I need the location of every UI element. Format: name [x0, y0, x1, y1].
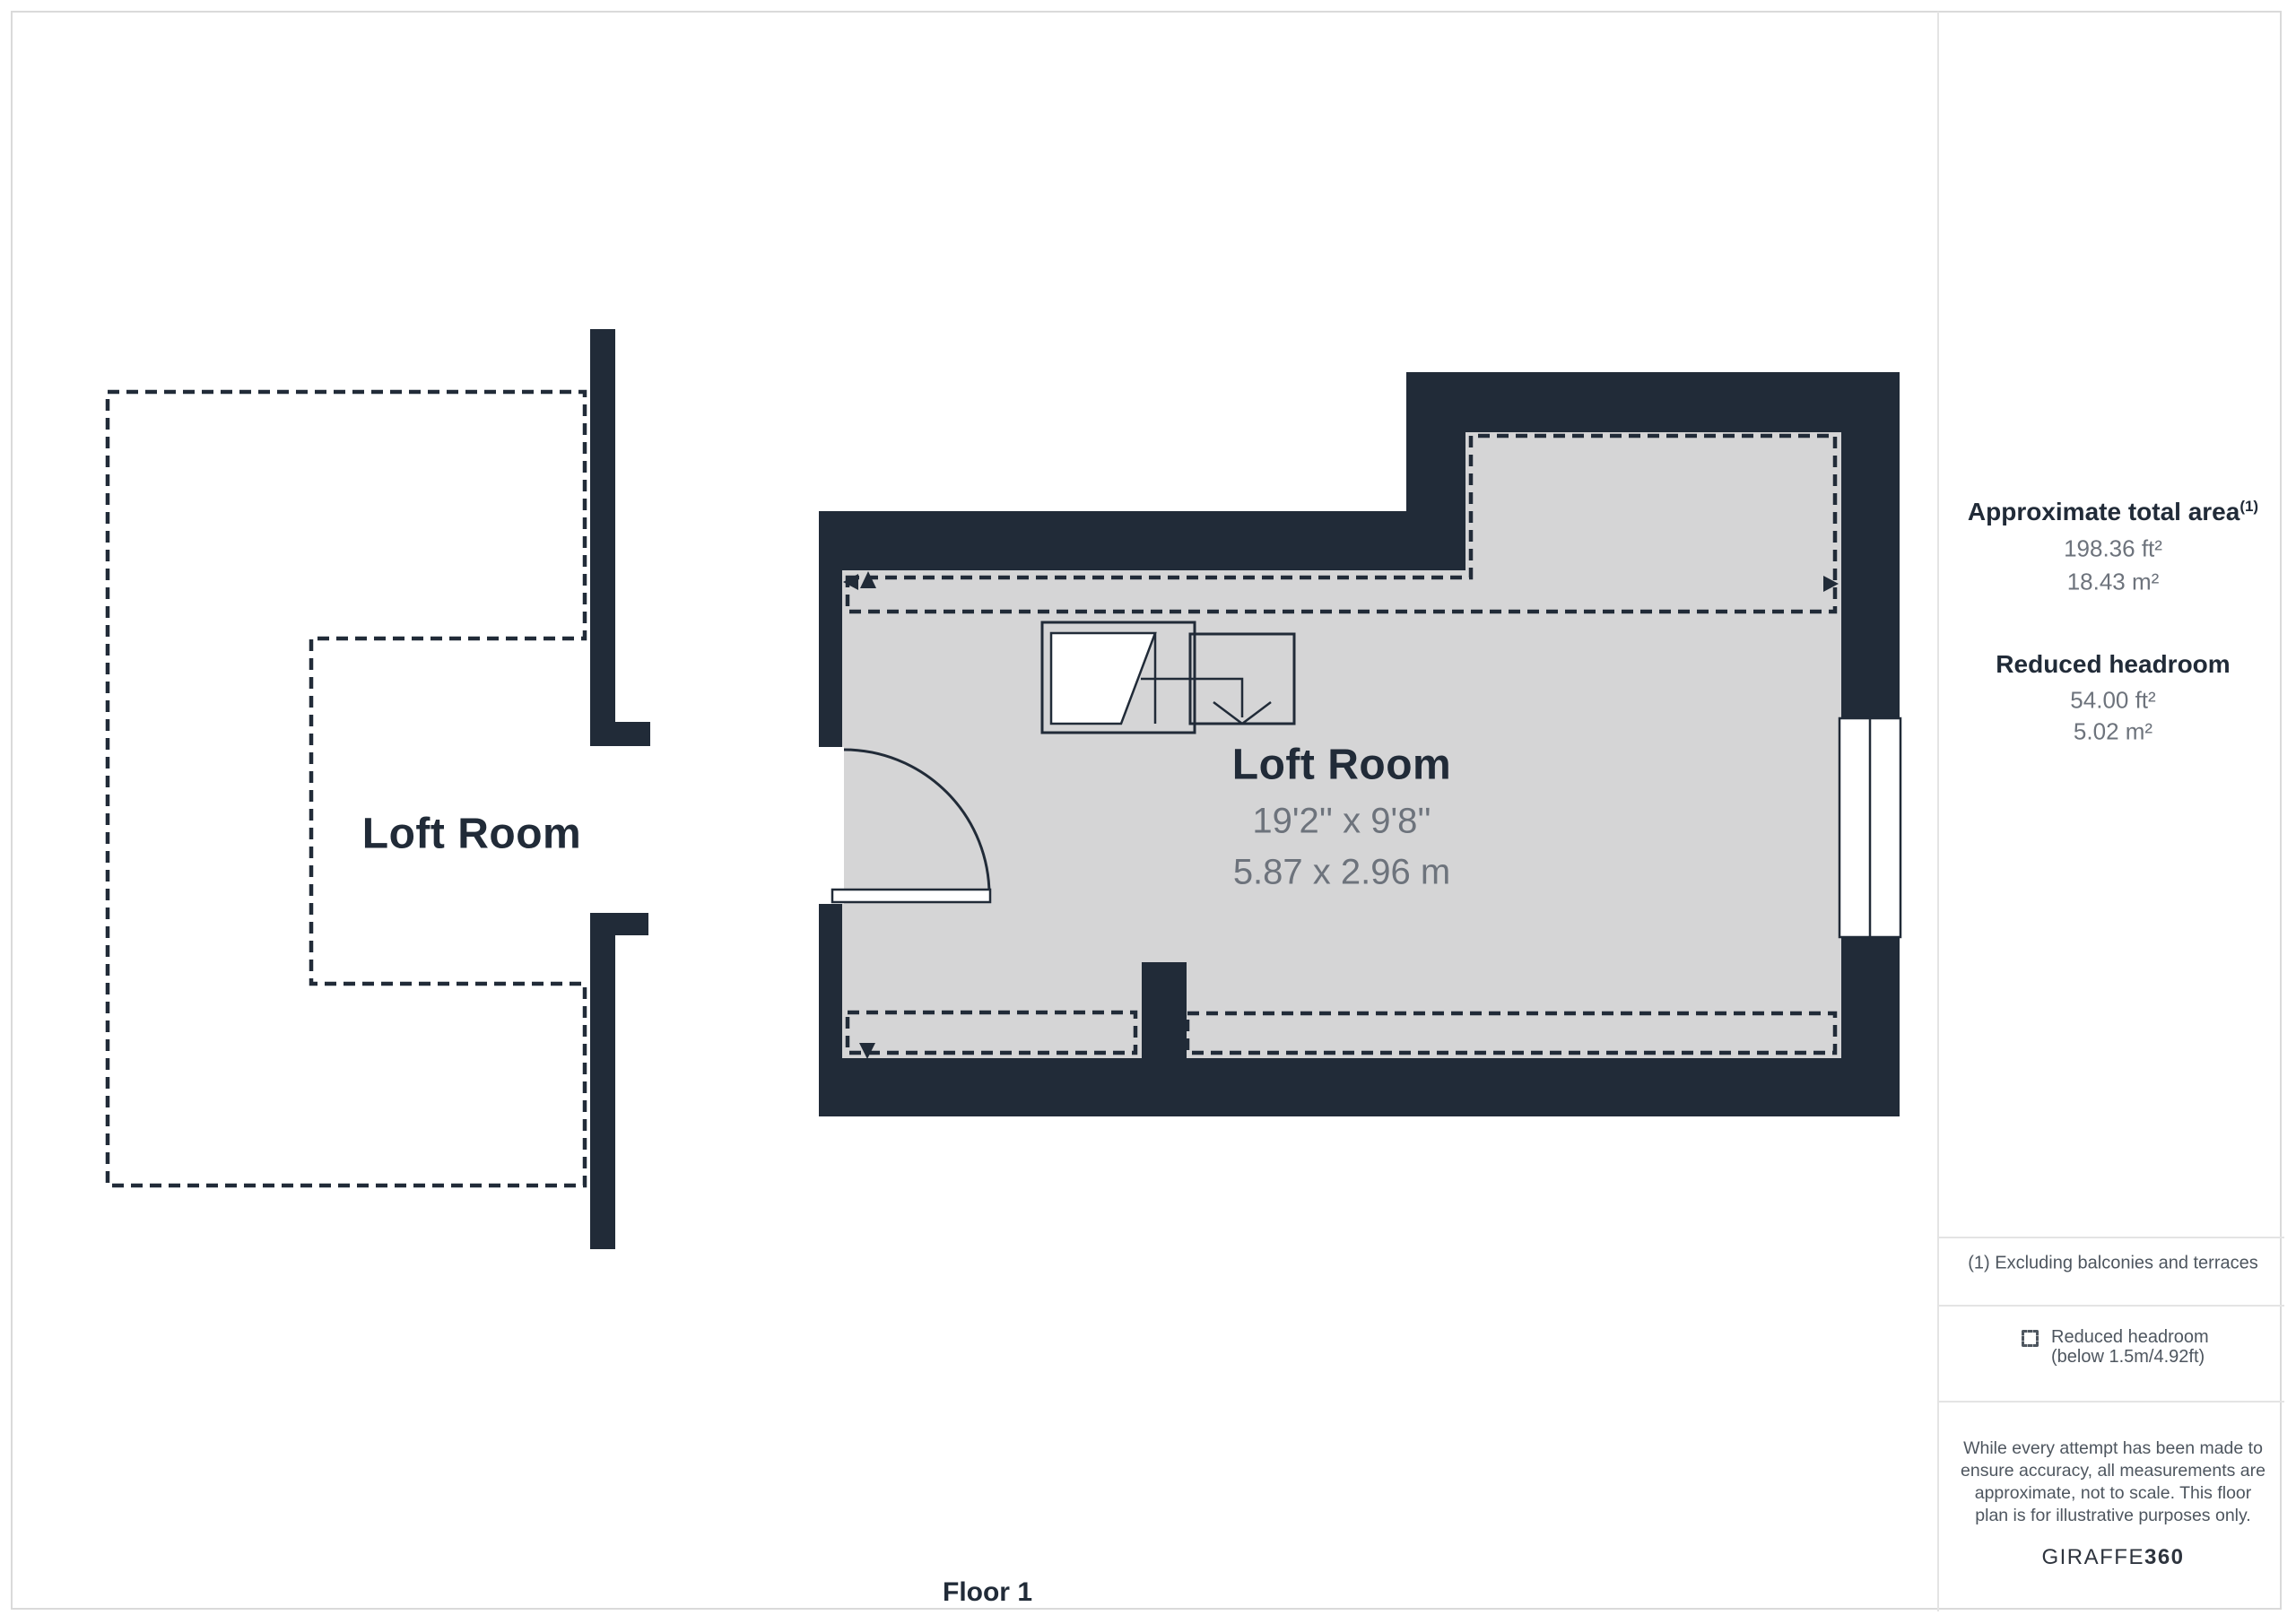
- left-room-wall-upper: [590, 329, 615, 746]
- floor-name-label: Floor 1: [943, 1577, 1032, 1608]
- disclaimer-text: While every attempt has been made to ens…: [1961, 1437, 2266, 1527]
- window-icon: [1839, 718, 1900, 937]
- total-area-metric: 18.43 m²: [2067, 569, 2160, 596]
- total-area-title: Approximate total area(1): [1968, 498, 2258, 526]
- brand-logo: GIRAFFE360: [2041, 1545, 2184, 1570]
- legend-line1: Reduced headroom: [2051, 1327, 2209, 1347]
- main-room-label: Loft Room: [1232, 741, 1451, 790]
- left-room-label: Loft Room: [362, 810, 581, 859]
- main-room-dimensions-imperial: 19'2'' x 9'8'': [1252, 802, 1431, 842]
- reduced-headroom-legend-icon: [2022, 1330, 2039, 1347]
- left-room-reduced-headroom-outline: [108, 392, 585, 1185]
- brand-name: GIRAFFE: [2041, 1545, 2144, 1569]
- reduced-headroom-metric: 5.02 m²: [2074, 718, 2152, 746]
- total-area-title-text: Approximate total area: [1968, 498, 2239, 525]
- main-room-wall-stub: [1142, 962, 1187, 1063]
- reduced-headroom-imperial: 54.00 ft²: [2070, 687, 2155, 715]
- floorplan-drawing: [0, 0, 2296, 1624]
- left-room-wall-lower-return: [615, 913, 648, 935]
- main-room-dimensions-metric: 5.87 x 2.96 m: [1233, 853, 1450, 893]
- total-area-footnote-marker: (1): [2239, 498, 2258, 515]
- left-room-wall-lower: [590, 913, 615, 1249]
- floorplan-page: { "plan": { "floor_label": "Floor 1", "l…: [0, 0, 2296, 1624]
- area-footnote: (1) Excluding balconies and terraces: [1968, 1254, 2258, 1274]
- reduced-headroom-title: Reduced headroom: [1996, 650, 2230, 679]
- total-area-imperial: 198.36 ft²: [2064, 535, 2162, 563]
- legend-line2: (below 1.5m/4.92ft): [2051, 1347, 2209, 1367]
- left-room-wall-upper-return: [615, 722, 650, 746]
- brand-suffix: 360: [2144, 1545, 2185, 1569]
- reduced-headroom-legend: Reduced headroom (below 1.5m/4.92ft): [2022, 1327, 2209, 1367]
